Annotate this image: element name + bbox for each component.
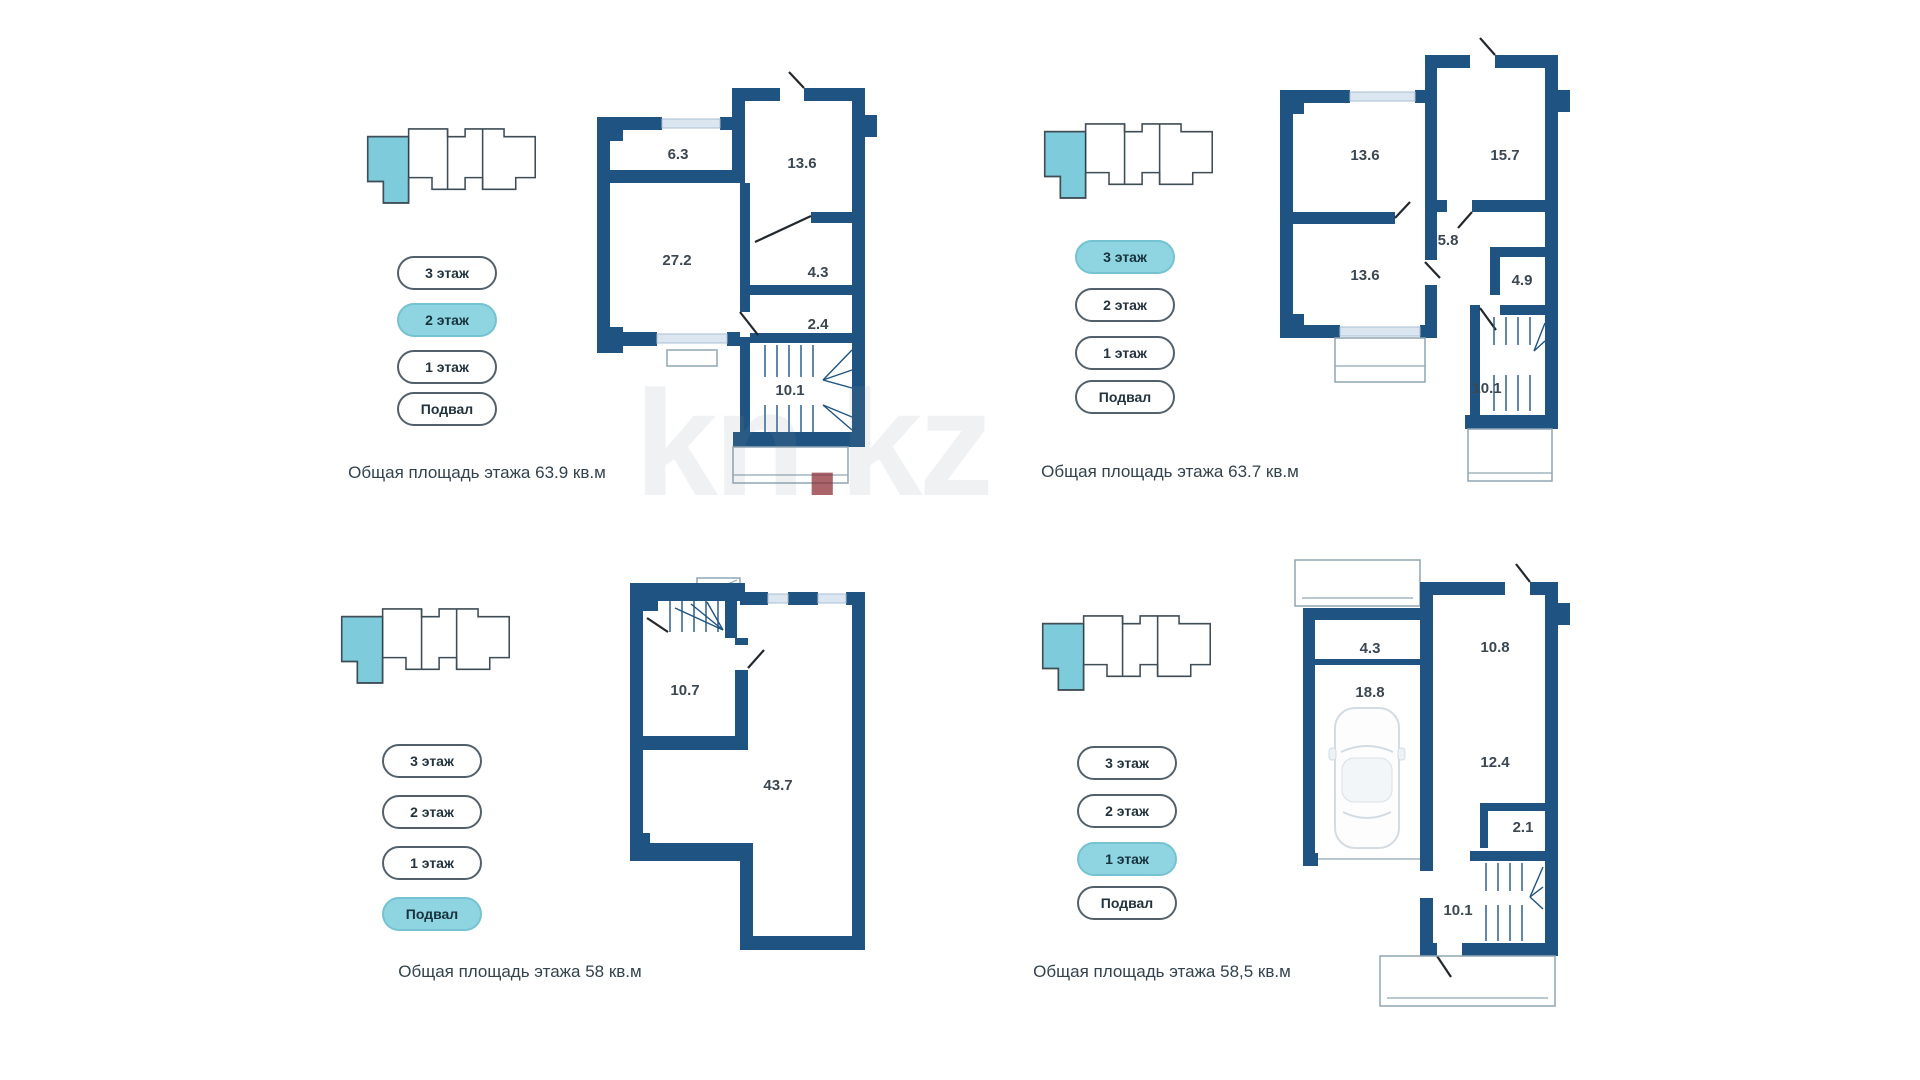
- car-icon: [1329, 708, 1405, 848]
- floor-button-2etazh[interactable]: 2 этаж: [1077, 794, 1177, 828]
- site-plan-q2: [1035, 115, 1220, 201]
- stairs-icon: [1494, 317, 1545, 411]
- highlighted-unit: [368, 137, 409, 203]
- total-area-caption: Общая площадь этажа 63.9 кв.м: [327, 463, 627, 483]
- highlighted-unit: [1045, 132, 1086, 198]
- floor-button-podval[interactable]: Подвал: [397, 392, 497, 426]
- room-area-label: 10.1: [1472, 380, 1501, 397]
- total-area-caption: Общая площадь этажа 63.7 кв.м: [1020, 462, 1320, 482]
- room-area-label: 18.8: [1355, 684, 1384, 701]
- room-area-label: 12.4: [1480, 754, 1510, 771]
- room-area-label: 4.9: [1512, 272, 1533, 289]
- room-area-label: 13.6: [1350, 267, 1379, 284]
- room-area-label: 4.3: [1360, 640, 1381, 657]
- room-area-label: 43.7: [763, 777, 792, 794]
- room-area-label: 10.1: [1443, 902, 1472, 919]
- floor-plan-podval: 10.7 43.7: [625, 570, 870, 962]
- room-area-label: 10.7: [670, 682, 699, 699]
- floor-button-podval[interactable]: Подвал: [1077, 886, 1177, 920]
- room-area-label: 5.8: [1438, 232, 1459, 249]
- room-area-label: 13.6: [1350, 147, 1379, 164]
- room-area-label: 27.2: [662, 252, 691, 269]
- floor-button-2etazh[interactable]: 2 этаж: [1075, 288, 1175, 322]
- room-area-label: 13.6: [787, 155, 816, 172]
- room-area-label: 2.4: [808, 316, 830, 333]
- total-area-caption: Общая площадь этажа 58,5 кв.м: [1012, 962, 1312, 982]
- room-area-label: 15.7: [1490, 147, 1519, 164]
- floor-button-1etazh[interactable]: 1 этаж: [1075, 336, 1175, 370]
- stairs-icon: [1486, 863, 1543, 941]
- floor-plan-2etazh: 6.3 13.6 27.2 4.3 2.4 10.1: [593, 72, 883, 492]
- site-plan-q1: [358, 120, 543, 206]
- floor-button-2etazh[interactable]: 2 этаж: [397, 303, 497, 337]
- floor-button-3etazh[interactable]: 3 этаж: [382, 744, 482, 778]
- floor-button-3etazh[interactable]: 3 этаж: [397, 256, 497, 290]
- floorplans-page: 3 этаж 2 этаж 1 этаж Подвал: [0, 0, 1920, 1080]
- floor-button-1etazh[interactable]: 1 этаж: [1077, 842, 1177, 876]
- site-plan-q3: [332, 600, 517, 686]
- highlighted-unit: [342, 617, 383, 683]
- floor-plan-3etazh: 13.6 15.7 5.8 13.6 4.9 10.1: [1272, 25, 1575, 490]
- floor-button-2etazh[interactable]: 2 этаж: [382, 795, 482, 829]
- highlighted-unit: [1043, 624, 1084, 690]
- stairs-icon: [670, 601, 723, 632]
- room-area-label: 6.3: [668, 146, 689, 163]
- site-plan-q4: [1033, 607, 1218, 693]
- floor-button-3etazh[interactable]: 3 этаж: [1075, 240, 1175, 274]
- room-area-label: 4.3: [808, 264, 829, 281]
- total-area-caption: Общая площадь этажа 58 кв.м: [370, 962, 670, 982]
- floor-button-1etazh[interactable]: 1 этаж: [382, 846, 482, 880]
- floor-button-podval[interactable]: Подвал: [1075, 380, 1175, 414]
- floor-plan-1etazh: 4.3 10.8 18.8 12.4 2.1 10.1: [1290, 553, 1582, 1013]
- room-area-label: 10.1: [775, 382, 804, 399]
- room-area-label: 10.8: [1480, 639, 1509, 656]
- room-area-label: 2.1: [1513, 819, 1534, 836]
- floor-button-3etazh[interactable]: 3 этаж: [1077, 746, 1177, 780]
- floor-button-1etazh[interactable]: 1 этаж: [397, 350, 497, 384]
- floor-button-podval[interactable]: Подвал: [382, 897, 482, 931]
